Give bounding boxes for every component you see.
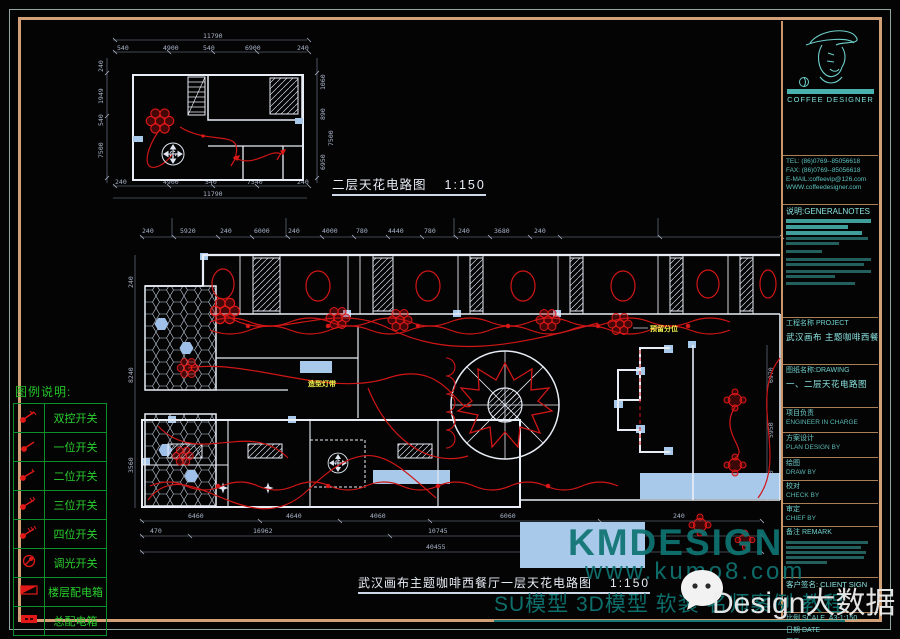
main-plan-title-text: 武汉画布主题咖啡西餐厅一层天花电路图 xyxy=(358,576,592,590)
main-plan-dimension-lines xyxy=(135,218,784,554)
remark-section: 备注 REMARK xyxy=(783,527,878,578)
dim-label: 7500 xyxy=(327,130,335,146)
legend-label: 总配电箱 xyxy=(45,607,107,636)
plan-design-label: 方案设计 xyxy=(786,435,875,444)
remark-line xyxy=(786,541,868,544)
check-by-label: 校对 xyxy=(786,483,875,492)
legend-row: 三位开关 xyxy=(14,491,107,520)
logo-bar xyxy=(787,89,874,94)
notes-line xyxy=(786,263,864,266)
annotation-light-strip: 造型灯带 xyxy=(308,379,336,388)
dim-label: 540 xyxy=(117,44,129,52)
switch-3-gang-icon xyxy=(18,495,40,511)
legend-label: 双控开关 xyxy=(45,404,107,433)
contact-fax: FAX: (86)0769--85056618 xyxy=(786,167,868,175)
switch-1-gang-icon xyxy=(18,437,40,453)
date-label: 日期 DATE xyxy=(786,627,820,634)
chief-by-section: 审定 CHIEF BY xyxy=(783,504,878,527)
remark-line xyxy=(786,561,827,564)
legend-panel: 图例说明: 双控开关 一位开关 二位开关 三位开关 四位开关 xyxy=(13,383,107,636)
scale-value: A3-1:150 xyxy=(829,615,857,622)
dim-label: 240 xyxy=(128,276,135,288)
legend-label: 二位开关 xyxy=(45,462,107,491)
upper-plan-dimension-lines xyxy=(105,38,319,198)
remark-line xyxy=(786,556,864,559)
dim-label: 240 xyxy=(458,227,470,235)
dim-label: 1949 xyxy=(97,88,105,104)
chief-by-en: CHIEF BY xyxy=(786,515,875,523)
upper-plan-circuit xyxy=(146,109,285,167)
dim-label: 240 xyxy=(142,227,154,235)
dim-label: 6950 xyxy=(319,154,327,170)
remark-line xyxy=(786,546,861,549)
legend-row: 调光开关 xyxy=(14,549,107,578)
notes-line xyxy=(786,225,848,229)
client-sign-label: 客户签名: CLIENT SIGN xyxy=(786,580,875,589)
notes-line xyxy=(786,237,868,240)
legend-row: 一位开关 xyxy=(14,433,107,462)
in-charge-en: ENGINEER IN CHARGE xyxy=(786,419,875,427)
dim-label: 240 xyxy=(288,227,300,235)
dim-label: 240 xyxy=(97,60,105,72)
legend-label: 调光开关 xyxy=(45,549,107,578)
notes-line xyxy=(786,270,871,273)
dim-label: 7500 xyxy=(97,142,105,158)
dim-label: 6900 xyxy=(245,44,261,52)
remark-line xyxy=(786,551,866,554)
draw-by-section: 绘图 DRAW BY xyxy=(783,458,878,481)
chief-by-label: 审定 xyxy=(786,506,875,515)
wechat-icon xyxy=(676,566,728,618)
legend-label: 四位开关 xyxy=(45,520,107,549)
annotation-reserved: 预留分位 xyxy=(650,324,678,333)
dim-label: 4440 xyxy=(388,227,404,235)
dim-label: 540 xyxy=(97,114,105,126)
switch-2-gang-icon xyxy=(18,466,40,482)
legend-label: 三位开关 xyxy=(45,491,107,520)
in-charge-label: 项目负责 xyxy=(786,410,875,419)
coffee-designer-face-logo xyxy=(792,25,870,87)
dim-label: 11790 xyxy=(203,190,223,198)
drawing-label: 图纸名称:DRAWING xyxy=(786,367,875,376)
date-row: 日期 DATE xyxy=(786,627,875,636)
draw-by-en: DRAW BY xyxy=(786,469,875,477)
second-floor-ceiling-plan: 11790 540 4900 540 6900 240 240 1949 540… xyxy=(85,28,340,200)
dim-label: 5920 xyxy=(180,227,196,235)
brand-name: COFFEE DESIGNER xyxy=(786,95,875,104)
dim-label: 6060 xyxy=(500,512,516,520)
cad-sheet: 11790 540 4900 540 6900 240 240 1949 540… xyxy=(0,0,900,639)
draw-by-label: 绘图 xyxy=(786,460,875,469)
general-notes-section: 说明:GENERALNOTES xyxy=(783,205,878,318)
main-plan-walls xyxy=(142,255,780,507)
legend-label: 楼层配电箱 xyxy=(45,578,107,607)
legend-label: 一位开关 xyxy=(45,433,107,462)
upper-plan-scale: 1:150 xyxy=(445,178,486,192)
engineer-in-charge-section: 项目负责 ENGINEER IN CHARGE xyxy=(783,408,878,433)
scale-row: 比例 SCALE A3-1:150 xyxy=(786,615,875,624)
contact-section: TEL: (86)0769--85056618 FAX: (86)0769--8… xyxy=(783,156,878,205)
dim-label: 4000 xyxy=(322,227,338,235)
dim-label: 240 xyxy=(534,227,546,235)
contact-email: E-MAIL:coffeevip@126.com xyxy=(786,176,868,184)
project-name: 武汉画布 主题咖啡西餐厅 xyxy=(786,332,875,343)
client-sign-section: 客户签名: CLIENT SIGN xyxy=(783,578,878,613)
main-plan-scale: 1:150 xyxy=(610,576,650,590)
dim-label: 470 xyxy=(150,527,162,535)
scale-label: 比例 SCALE xyxy=(786,615,825,622)
dim-label: 40455 xyxy=(426,543,446,551)
dim-label: 11790 xyxy=(203,32,223,40)
notes-line xyxy=(786,275,835,278)
dim-label: 4900 xyxy=(163,44,179,52)
dim-label: 240 xyxy=(115,178,127,186)
dim-label: 780 xyxy=(356,227,368,235)
drawing-name-section: 图纸名称:DRAWING 一、二层天花电路图 xyxy=(783,365,878,408)
title-block: COFFEE DESIGNER TEL: (86)0769--85056618 … xyxy=(781,21,878,618)
floor-distribution-box-icon xyxy=(18,582,40,598)
legend-title: 图例说明: xyxy=(15,383,107,400)
notes-line xyxy=(786,219,871,223)
legend-row: 楼层配电箱 xyxy=(14,578,107,607)
dim-label: 240 xyxy=(297,44,309,52)
dim-label: 780 xyxy=(424,227,436,235)
project-section: 工程名称 PROJECT 武汉画布 主题咖啡西餐厅 xyxy=(783,318,878,365)
dimmer-switch-icon xyxy=(18,553,40,569)
plan-design-en: PLAN DESIGN BY xyxy=(786,444,875,452)
dim-label: 10745 xyxy=(428,527,448,535)
dim-label: 16962 xyxy=(253,527,273,535)
dim-label: 3680 xyxy=(494,227,510,235)
upper-plan-title: 二层天花电路图1:150 xyxy=(332,174,486,196)
sheet-footer-section: 比例 SCALE A3-1:150 日期 DATE 图号 DRAWING NO … xyxy=(783,613,878,639)
switch-4-gang-icon xyxy=(18,524,40,540)
dim-label: 4640 xyxy=(286,512,302,520)
remark-label: 备注 REMARK xyxy=(786,529,875,538)
switch-double-control-icon xyxy=(18,408,40,424)
dim-label: 6460 xyxy=(188,512,204,520)
notes-line xyxy=(786,250,822,253)
dim-label: 240 xyxy=(220,227,232,235)
dim-label: 3560 xyxy=(128,457,135,473)
legend-row: 总配电箱 xyxy=(14,607,107,636)
main-plan-title: 武汉画布主题咖啡西餐厅一层天花电路图1:150 xyxy=(358,574,650,594)
legend-row: 四位开关 xyxy=(14,520,107,549)
dim-label: 890 xyxy=(319,108,327,120)
dim-label: 1060 xyxy=(319,74,327,90)
notes-line xyxy=(786,282,855,285)
main-distribution-box-icon xyxy=(18,611,40,627)
contact-web: WWW.coffeedesigner.com xyxy=(786,185,868,193)
project-label: 工程名称 PROJECT xyxy=(786,320,875,329)
dim-label: 540 xyxy=(203,44,215,52)
contact-tel: TEL: (86)0769--85056618 xyxy=(786,158,868,166)
first-floor-ceiling-plan: 240 5920 240 6000 240 4000 780 4440 780 … xyxy=(128,218,785,568)
check-by-section: 校对 CHECK BY xyxy=(783,481,878,504)
notes-line xyxy=(786,242,839,245)
notes-line xyxy=(786,231,862,235)
plan-design-section: 方案设计 PLAN DESIGN BY xyxy=(783,433,878,458)
dim-label: 6000 xyxy=(254,227,270,235)
drawing-name: 一、二层天花电路图 xyxy=(786,379,875,390)
dim-label: 8240 xyxy=(128,367,135,383)
check-by-en: CHECK BY xyxy=(786,492,875,500)
upper-plan-title-text: 二层天花电路图 xyxy=(332,178,427,192)
notes-line xyxy=(786,258,871,261)
dim-label: 240 xyxy=(673,512,685,520)
main-plan-circuit xyxy=(148,269,780,509)
title-block-logo-section: COFFEE DESIGNER xyxy=(783,21,878,156)
dim-label: 4060 xyxy=(370,512,386,520)
general-notes-header: 说明:GENERALNOTES xyxy=(786,207,875,217)
legend-row: 二位开关 xyxy=(14,462,107,491)
legend-row: 双控开关 xyxy=(14,404,107,433)
